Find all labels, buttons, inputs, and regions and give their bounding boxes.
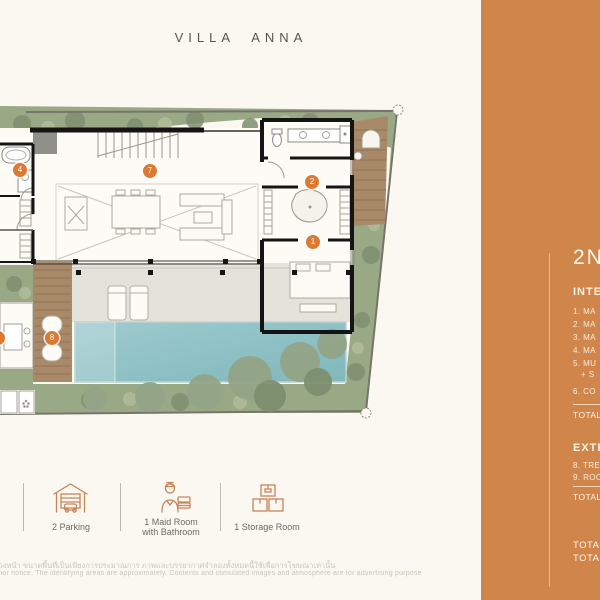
maid-room-label: 1 Maid Room	[131, 517, 211, 527]
pool-deck	[33, 262, 72, 382]
floor-heading: 2N	[573, 246, 600, 270]
interior-heading: INTE	[573, 286, 600, 298]
exterior-item: 8. TRE	[573, 461, 600, 470]
interior-item: 1. MA	[573, 307, 596, 316]
interior-item: 3. MA	[573, 333, 596, 342]
legend-divider	[220, 483, 221, 531]
exterior-item: 9. ROO	[573, 473, 600, 482]
maid-room-label-2: with Bathroom	[131, 527, 211, 537]
exterior-total-rule	[573, 486, 600, 487]
exterior-total: TOTAL	[573, 492, 600, 502]
info-sidebar: 2N INTE 1. MA 2. MA 3. MA 4. MA 5. MU + …	[481, 0, 600, 600]
interior-item: 4. MA	[573, 346, 596, 355]
storage-icon	[250, 483, 286, 514]
garage-icon	[52, 481, 89, 515]
interior-item: 6. CO	[573, 387, 596, 396]
maid-icon	[154, 479, 192, 515]
interior-item-cont: + S	[581, 370, 594, 379]
disclaimer-english: prior notice. The identifying areas are …	[0, 570, 424, 577]
grand-total-2: TOTAL	[573, 553, 600, 564]
interior-item: 5. MU	[573, 359, 596, 368]
storage-room-label: 1 Storage Room	[222, 522, 312, 532]
room-badge-2: 2	[305, 175, 319, 189]
page-title: VILLA ANNA	[0, 30, 482, 45]
room-badge-8: 8	[45, 331, 59, 345]
room-badge-7: 7	[143, 164, 157, 178]
legend-divider	[23, 483, 24, 531]
room-badge-1: 1	[306, 235, 320, 249]
grand-total-1: TOTAL	[573, 540, 600, 551]
parking-label: 2 Parking	[36, 522, 106, 532]
interior-item: 2. MA	[573, 320, 596, 329]
legend-divider	[120, 483, 121, 531]
side-deck	[352, 116, 388, 226]
interior-total-rule	[573, 404, 600, 405]
interior-total: TOTAL	[573, 410, 600, 420]
exterior-heading: EXTE	[573, 442, 600, 454]
floor-plan	[0, 100, 480, 480]
brochure-page: VILLA ANNA	[0, 0, 600, 600]
sidebar-divider	[549, 253, 550, 587]
room-badge-4: 4	[13, 163, 27, 177]
